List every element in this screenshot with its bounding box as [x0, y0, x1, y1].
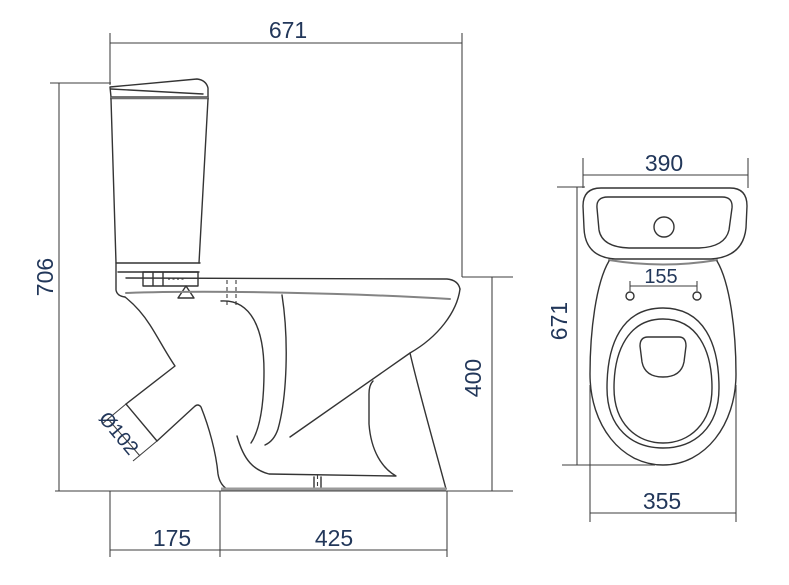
pedestal-rear-edge: [410, 353, 446, 489]
dim-top-bowl-width: 355: [590, 385, 736, 522]
toilet-technical-drawing: 671 706 400 175 425 Ø102: [0, 0, 789, 585]
dim-side-base-length-label: 425: [315, 525, 353, 551]
trap-inner-right: [265, 295, 286, 445]
seat-bolt-hole-left: [626, 292, 634, 300]
sump-inner-line: [237, 381, 396, 476]
bowl-back-sliver: [609, 260, 717, 265]
top-view: 390 155 671 355: [546, 150, 748, 522]
cistern-inner: [597, 197, 732, 248]
side-view: 671 706 400 175 425 Ø102: [32, 17, 513, 557]
cistern-lid-front-slope: [111, 89, 203, 94]
dim-top-cistern-width-label: 390: [645, 150, 683, 176]
dim-outlet-diameter: Ø102: [94, 404, 157, 461]
bowl-front-profile: [125, 297, 175, 404]
dim-top-overall-depth-label: 671: [546, 302, 572, 340]
hinge-block: [143, 272, 198, 286]
dim-side-overall-depth-label: 671: [269, 17, 307, 43]
dim-top-cistern-width: 390: [583, 150, 748, 188]
dim-side-overall-depth: 671: [110, 17, 462, 277]
seat-bolt-hole-right: [693, 292, 701, 300]
cistern-side: [110, 79, 209, 297]
dim-top-bolt-spacing: 155: [630, 266, 697, 291]
drawing-canvas: 671 706 400 175 425 Ø102: [0, 0, 789, 585]
bowl-side: [125, 289, 460, 490]
bowl-outer-plan: [590, 261, 736, 465]
dim-side-overall-height: 706: [32, 83, 111, 491]
dim-side-rim-height: 400: [460, 277, 513, 491]
bowl-plan: [590, 261, 736, 465]
trap-inner-left: [221, 301, 264, 443]
cistern-plan: [583, 188, 747, 265]
dim-side-rim-height-label: 400: [460, 359, 486, 397]
sump-plan: [640, 337, 686, 377]
cistern-back-edge: [199, 99, 208, 263]
pedestal-front-edge: [157, 405, 229, 490]
bowl-opening-outer-ring: [607, 308, 719, 448]
cistern-lid: [110, 79, 208, 97]
dim-side-overall-height-label: 706: [32, 258, 58, 296]
seat-top-line: [126, 278, 460, 289]
cistern-front-edge: [111, 99, 125, 297]
dim-top-bowl-width-label: 355: [643, 488, 681, 514]
cistern-bottom-edge: [116, 263, 200, 272]
dim-side-front-offset-label: 175: [153, 525, 191, 551]
bowl-rear-profile: [290, 289, 460, 437]
seat-side: [126, 272, 460, 307]
dim-top-bolt-spacing-label: 155: [644, 266, 677, 288]
dim-side-base: 175 425: [110, 491, 447, 557]
bowl-rim-line: [126, 292, 450, 299]
flush-button: [654, 217, 674, 237]
